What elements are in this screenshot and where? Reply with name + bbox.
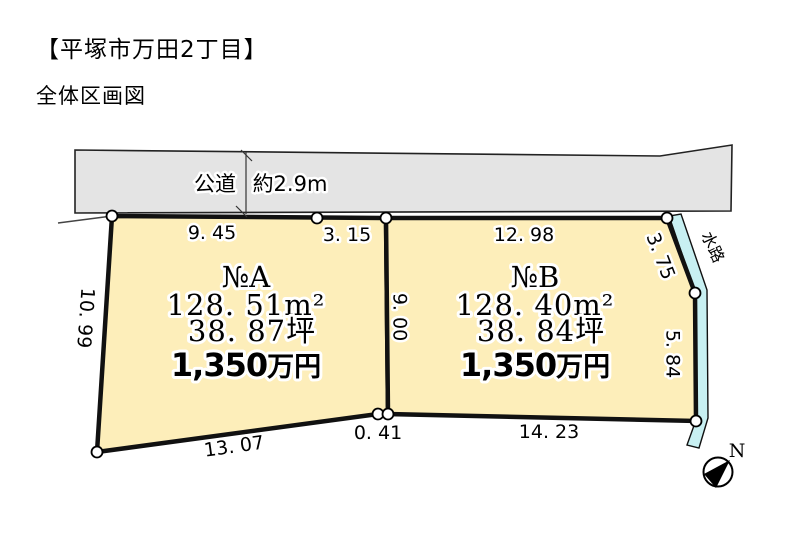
dimension-a-top-left: 9. 45: [188, 222, 236, 244]
dimension-a-left: 10. 99: [72, 287, 98, 349]
lot-b-price-unit: 万円: [556, 352, 610, 383]
road-label: 公道: [194, 172, 236, 196]
dimension-b-right-lower: 5. 84: [661, 330, 683, 378]
compass-north-label: N: [729, 440, 746, 462]
vertex-marker: [691, 416, 702, 427]
boundary-extension-line: [58, 216, 112, 223]
parcel-diagram: 公道 約2.9m 9. 45 3. 15 12. 98 0. 41 14. 23…: [0, 0, 800, 544]
lot-b-price-value: 1,350: [460, 346, 556, 384]
dimension-center-divider: 9. 00: [388, 293, 410, 341]
lot-b-price: 1,350万円: [460, 346, 610, 384]
lot-a-price-unit: 万円: [267, 352, 321, 383]
waterway-label: 水路: [698, 229, 729, 266]
dimension-b-top: 12. 98: [494, 224, 554, 246]
vertex-marker: [92, 447, 103, 458]
road-width-label: 約2.9m: [253, 172, 328, 196]
vertex-marker: [662, 213, 673, 224]
lot-b-area-tsubo: 38. 84坪: [477, 314, 605, 348]
lot-a-area-tsubo: 38. 87坪: [188, 314, 316, 348]
dimension-a-top-right: 3. 15: [323, 224, 371, 246]
vertex-marker: [312, 213, 323, 224]
parcel-map-canvas: 【平塚市万田2丁目】 全体区画図: [0, 0, 800, 544]
vertex-marker: [690, 288, 701, 299]
dimension-b-bottom: 14. 23: [519, 421, 579, 443]
lot-a-price: 1,350万円: [171, 346, 321, 384]
vertex-marker: [381, 213, 392, 224]
vertex-marker: [107, 211, 118, 222]
road-area: [75, 145, 732, 213]
lot-a-price-value: 1,350: [171, 346, 267, 384]
compass: N: [704, 440, 746, 488]
vertex-marker: [383, 409, 394, 420]
dimension-bottom-gap: 0. 41: [354, 422, 402, 444]
